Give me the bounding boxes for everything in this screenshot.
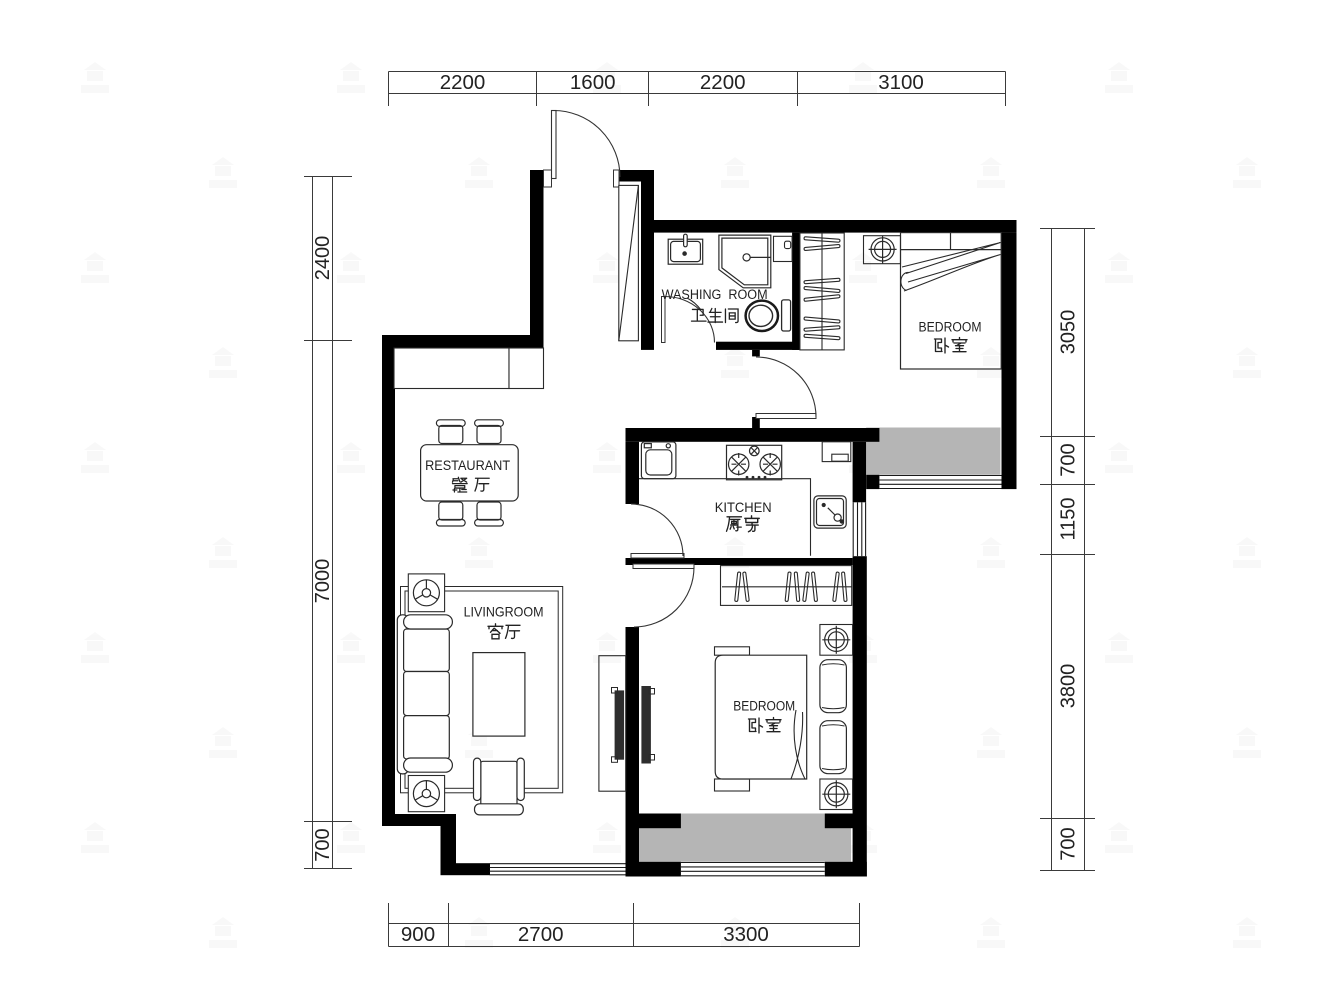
svg-text:BEDROOM: BEDROOM <box>733 699 795 714</box>
svg-text:2200: 2200 <box>700 71 746 94</box>
svg-text:7000: 7000 <box>312 559 334 604</box>
svg-text:3800: 3800 <box>1058 664 1080 709</box>
svg-text:3100: 3100 <box>878 71 924 94</box>
svg-text:RESTAURANT: RESTAURANT <box>425 458 510 473</box>
svg-text:700: 700 <box>1058 827 1080 860</box>
svg-text:3300: 3300 <box>723 923 769 946</box>
svg-text:3050: 3050 <box>1058 310 1080 355</box>
svg-text:2200: 2200 <box>440 71 486 94</box>
svg-text:WASHING ROOM: WASHING ROOM <box>662 287 768 302</box>
svg-text:1600: 1600 <box>570 71 616 94</box>
svg-text:BEDROOM: BEDROOM <box>919 320 982 335</box>
svg-text:2700: 2700 <box>518 923 564 946</box>
svg-text:KITCHEN: KITCHEN <box>715 499 772 515</box>
svg-text:700: 700 <box>1058 443 1080 476</box>
svg-text:700: 700 <box>312 828 334 861</box>
svg-text:LIVINGROOM: LIVINGROOM <box>464 603 544 619</box>
svg-text:1150: 1150 <box>1058 497 1080 540</box>
svg-text:900: 900 <box>401 923 435 946</box>
svg-text:2400: 2400 <box>312 236 334 281</box>
